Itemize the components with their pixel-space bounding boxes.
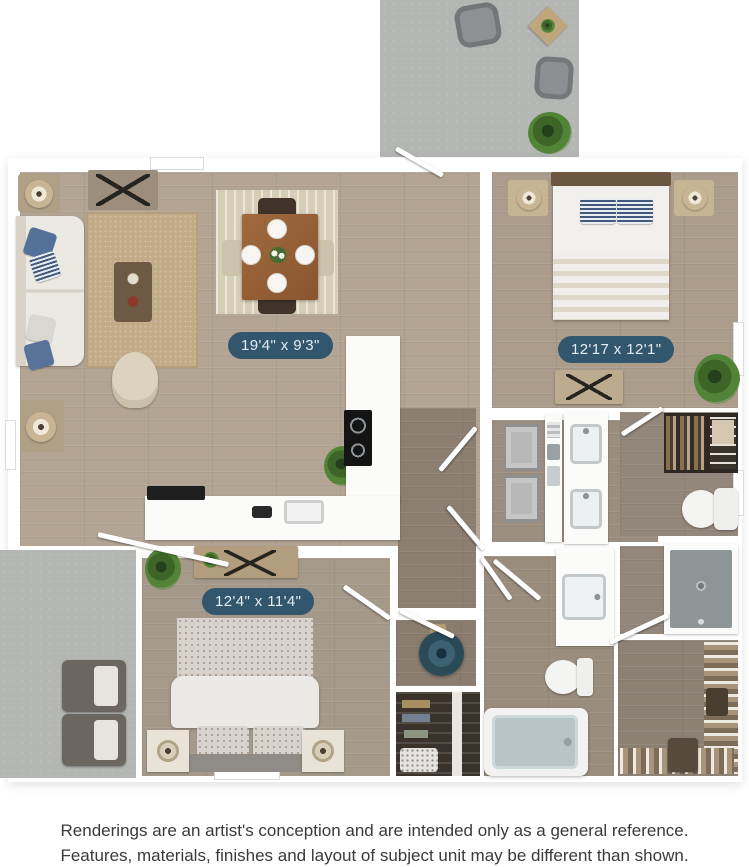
washer bbox=[503, 424, 540, 471]
balcony-table-plant-icon bbox=[541, 19, 555, 33]
shelf-item-icon bbox=[402, 714, 430, 722]
dining-chair bbox=[222, 240, 242, 276]
kitchen-appliance-dark bbox=[147, 486, 205, 500]
balcony-chair-2-icon bbox=[534, 56, 575, 101]
towel-stack-icon bbox=[547, 466, 560, 486]
plate-icon bbox=[241, 245, 261, 265]
headboard bbox=[551, 172, 671, 186]
lamp-icon bbox=[26, 412, 56, 442]
window-icon bbox=[150, 157, 204, 170]
fan-decor-icon bbox=[96, 174, 150, 206]
toilet-tank bbox=[577, 658, 593, 696]
bed-duvet bbox=[171, 676, 319, 728]
dimension-label-living: 19'4" x 9'3" bbox=[228, 332, 333, 359]
bed-blanket bbox=[177, 618, 313, 680]
towel-stack-icon bbox=[547, 422, 560, 438]
shower-pan bbox=[670, 550, 732, 628]
toilet-bowl bbox=[545, 660, 581, 694]
balcony-chair-icon bbox=[453, 0, 504, 49]
ironing-board-icon bbox=[400, 748, 438, 772]
fan-decor-icon bbox=[566, 374, 612, 400]
shelf-item-icon bbox=[404, 730, 428, 738]
patio-cushion-icon bbox=[94, 666, 118, 706]
dryer bbox=[503, 475, 540, 522]
soap-dispenser-icon bbox=[547, 444, 560, 460]
vanity-sink bbox=[562, 574, 606, 620]
window-icon bbox=[5, 420, 16, 470]
water-heater bbox=[419, 631, 464, 676]
nightstand bbox=[302, 730, 344, 772]
shelf-item-icon bbox=[402, 700, 430, 708]
disclaimer-line-2: Features, materials, finishes and layout… bbox=[0, 845, 749, 867]
patio-cushion-icon bbox=[94, 720, 118, 760]
vanity-sink bbox=[570, 489, 602, 529]
coffee-table bbox=[114, 262, 152, 322]
storage-chest-icon bbox=[706, 688, 728, 716]
bed-blanket bbox=[553, 252, 669, 320]
plate-icon bbox=[295, 245, 315, 265]
bed-pillow-icon bbox=[580, 198, 616, 224]
accent-chair bbox=[112, 352, 158, 408]
lamp-icon bbox=[517, 186, 541, 210]
kitchen-faucet-icon bbox=[252, 506, 272, 518]
plate-icon bbox=[267, 219, 287, 239]
disclaimer-text: Renderings are an artist's conception an… bbox=[0, 820, 749, 867]
kitchen-sink bbox=[284, 500, 324, 524]
bed-pillow-icon bbox=[617, 198, 653, 224]
lamp-icon bbox=[683, 186, 707, 210]
cooktop bbox=[344, 410, 372, 466]
closet-shelf-divider bbox=[452, 692, 462, 776]
lamp-icon bbox=[25, 180, 53, 208]
hamper-icon bbox=[668, 738, 698, 772]
headboard bbox=[177, 754, 313, 772]
storage-box-icon bbox=[712, 420, 734, 444]
disclaimer-line-1: Renderings are an artist's conception an… bbox=[0, 820, 749, 842]
plate-icon bbox=[267, 273, 287, 293]
bathtub-basin bbox=[492, 715, 578, 769]
fan-decor-icon bbox=[224, 550, 276, 576]
dimension-label-bedroom-primary: 12'17 x 12'1" bbox=[558, 336, 674, 363]
toilet-tank bbox=[714, 488, 738, 530]
hanging-clothes-icon bbox=[666, 416, 706, 470]
balcony-plant-icon bbox=[528, 112, 572, 154]
floorplan-rendering: 19'4" x 9'3" 12'17 x 12'1" 12'4" x 11'4"… bbox=[0, 0, 749, 867]
dimension-label-bedroom-second: 12'4" x 11'4" bbox=[202, 588, 314, 615]
vanity-sink bbox=[570, 424, 602, 464]
floor-plant-icon bbox=[694, 354, 740, 404]
kitchen-counter-horizontal bbox=[145, 496, 400, 540]
nightstand bbox=[147, 730, 189, 772]
centerpiece-icon bbox=[269, 247, 287, 263]
